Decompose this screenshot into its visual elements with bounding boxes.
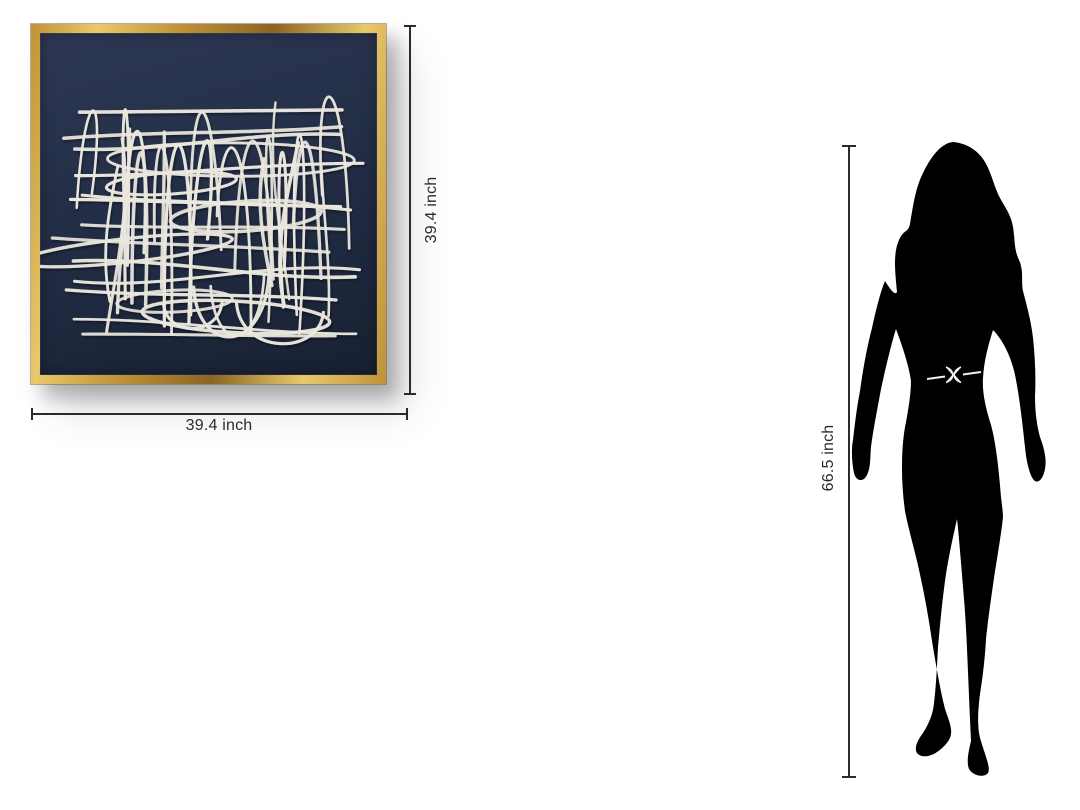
dimension-tick	[406, 408, 408, 420]
gold-frame	[31, 24, 386, 384]
dimension-line	[409, 25, 411, 395]
frame-height-dimension-line	[404, 25, 416, 395]
artwork-canvas	[40, 33, 377, 375]
dimension-tick	[404, 393, 416, 395]
woman-silhouette	[845, 140, 1055, 780]
scribble-art	[40, 33, 377, 375]
dimension-line	[31, 413, 408, 415]
figure-height-label: 66.5 inch	[820, 425, 838, 492]
frame-width-label: 39.4 inch	[186, 417, 253, 435]
frame-height-label: 39.4 inch	[423, 177, 441, 244]
woman-silhouette-shape	[852, 142, 1046, 776]
product-size-diagram: 39.4 inch 39.4 inch 66.5 inch	[0, 0, 1080, 810]
